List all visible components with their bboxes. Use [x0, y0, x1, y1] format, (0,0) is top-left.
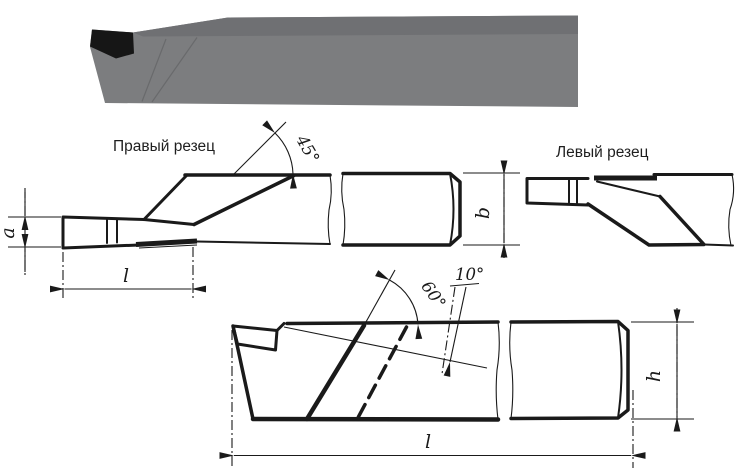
dim-b-label: b [472, 207, 494, 219]
left-blade-outline [527, 179, 588, 206]
side-insert-outline [233, 326, 277, 350]
angle-45-construction-line [233, 122, 286, 175]
side-hidden-diagonal [357, 327, 407, 420]
dim-b: b [463, 161, 520, 258]
left-insert-braze-marks [569, 180, 577, 203]
head-face-right-slant [194, 176, 294, 225]
right-cutter-label: Правый резец [113, 138, 215, 155]
angle-10-label: 10° [455, 265, 484, 284]
left-cutter-view: Левый резец [527, 144, 734, 246]
left-head-under-edge [597, 182, 660, 197]
shank2-outline [343, 174, 460, 246]
head-face-bottom-edge [144, 220, 194, 225]
left-cutter-label: Левый резец [556, 144, 649, 161]
left-shank-bottom-edge [704, 245, 733, 246]
side-view: 60° 10° h l [232, 265, 694, 468]
dim-a: a [0, 188, 61, 277]
dim-l-total-label: l [425, 431, 431, 453]
technical-drawing-canvas: Правый резец 45° a [0, 0, 739, 473]
side-break-left [496, 322, 499, 420]
tool-3d-render [90, 16, 578, 108]
blade-under-edge [136, 241, 197, 245]
angle-45-arc [275, 133, 293, 174]
dim-l-head-label: l [123, 265, 129, 287]
angle-60-arc [390, 280, 419, 325]
shank-break-right [342, 174, 345, 246]
right-cutter-view: Правый резец 45° a [0, 122, 520, 298]
left-shank-break [729, 175, 734, 246]
angle-60-construction-line [364, 270, 395, 326]
angle-45-annotation: 45° [233, 122, 323, 175]
side-top-edge-1 [287, 322, 498, 324]
shank1-bottom-edge [197, 242, 330, 245]
angle-10-annotation: 10° [442, 265, 484, 374]
side-break-right [510, 322, 513, 419]
cutoff-tool-drawing-page: Правый резец 45° a [0, 0, 739, 473]
angle-60-annotation: 60° [364, 270, 450, 326]
render-top-face [133, 16, 578, 37]
dim-l-head: l [63, 247, 193, 298]
insert-braze-marks [107, 220, 117, 244]
angle-60-label: 60° [417, 277, 449, 312]
side-insert-step [277, 324, 284, 331]
side-shank2-outline [511, 322, 628, 419]
dim-h: h [631, 308, 694, 434]
side-bottom-edge-1 [253, 419, 498, 420]
dim-l-total-extension-lines [232, 330, 633, 468]
shank-break-left [328, 175, 331, 244]
angle-10-slope-line [450, 287, 466, 362]
dim-h-label: h [643, 370, 665, 382]
left-head-face [588, 197, 704, 246]
head-face-left-slant [144, 175, 187, 220]
dim-a-label: a [0, 227, 19, 238]
shank-end-chamfer-arc [450, 174, 454, 246]
side-braze-diagonal [307, 326, 364, 420]
blade-outline [63, 217, 144, 248]
dim-l-total: l [232, 330, 633, 468]
side-shank-end-chamfer-arc [618, 322, 622, 419]
angle-45-label: 45° [292, 131, 324, 167]
